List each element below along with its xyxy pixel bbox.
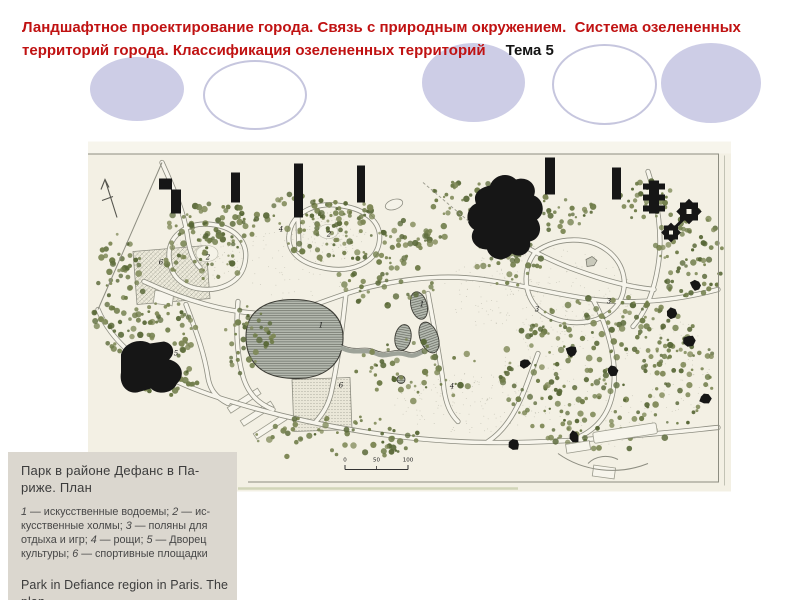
svg-text:1: 1 <box>319 322 323 330</box>
svg-text:6: 6 <box>339 382 344 390</box>
building-palace-of-culture <box>121 341 182 393</box>
decor-ellipse-1 <box>90 57 184 121</box>
building-bar-1 <box>231 173 240 203</box>
svg-text:5: 5 <box>174 350 179 358</box>
svg-text:0: 0 <box>343 458 347 464</box>
svg-text:2: 2 <box>326 231 332 239</box>
park-plan-svg: 050100 62421133564 <box>88 141 731 492</box>
building-bar-3 <box>357 166 365 203</box>
svg-text:4: 4 <box>278 226 283 234</box>
building-comb <box>643 181 665 214</box>
slide-title: Ландшафтное проектирование города. Связь… <box>22 16 770 62</box>
caption-title-en: Park in Defiance region in Paris. The pl… <box>21 577 233 600</box>
title-text: Ландшафтное проектирование города. Связь… <box>22 19 745 59</box>
svg-text:2: 2 <box>205 254 211 262</box>
svg-text:100: 100 <box>403 458 414 464</box>
park-plan-figure: 050100 62421133564 <box>88 141 731 492</box>
svg-text:3: 3 <box>535 306 540 314</box>
building-bar-5 <box>612 168 621 200</box>
topic-label: Тема 5 <box>506 42 554 59</box>
caption-box: Парк в районе Дефанс в Па-риже. План 1 —… <box>8 452 237 600</box>
building-bar-2 <box>294 164 303 218</box>
slide-background: Ландшафтное проектирование города. Связь… <box>0 0 800 600</box>
svg-text:4: 4 <box>449 383 454 391</box>
building-small-1 <box>159 179 172 190</box>
svg-text:1: 1 <box>420 301 424 309</box>
svg-text:6: 6 <box>159 259 164 267</box>
caption-title-ru: Парк в районе Дефанс в Па-риже. План <box>21 462 233 496</box>
caption-legend: 1 — искусственные водоемы; 2 — ис-кусств… <box>21 505 233 561</box>
decor-ellipse-2 <box>203 60 307 130</box>
building-bar-4 <box>545 158 555 195</box>
svg-text:50: 50 <box>373 458 380 464</box>
building-small-2 <box>171 190 181 214</box>
svg-text:3: 3 <box>607 298 612 306</box>
